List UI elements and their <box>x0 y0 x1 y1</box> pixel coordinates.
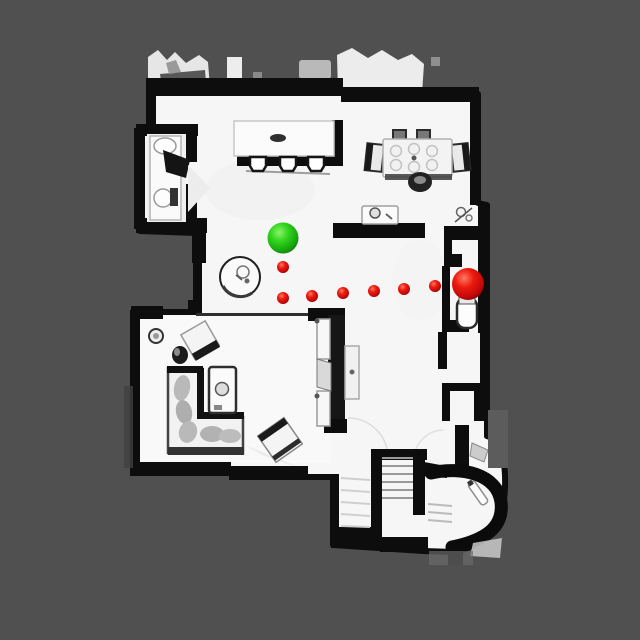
bar-stool-icon <box>308 157 324 171</box>
plate-icon <box>391 160 402 171</box>
map-canvas[interactable] <box>0 0 640 640</box>
wall-top-right <box>341 87 479 102</box>
shadow-patch <box>488 410 508 468</box>
waypoint-dot <box>368 285 380 297</box>
waypoint-dot <box>337 287 349 299</box>
stair-rail-right <box>413 452 425 515</box>
wall-entry <box>455 425 469 468</box>
stair-rail-left <box>371 452 382 532</box>
wall-hallway-stub <box>444 226 481 240</box>
plate-icon <box>427 146 438 157</box>
waypoint-dot <box>398 283 410 295</box>
waypoint-dot <box>429 280 441 292</box>
waypoint-dot <box>306 290 318 302</box>
bar-stool-icon <box>250 157 266 171</box>
kitchen-island <box>234 121 334 174</box>
wall-right <box>470 97 481 205</box>
round-table <box>220 257 260 297</box>
plate-icon <box>409 162 420 173</box>
wall-hallway-right <box>478 202 488 333</box>
floor-lamp-icon <box>172 346 188 364</box>
map-viewport <box>0 0 640 640</box>
side-table <box>362 206 398 224</box>
coffee-table-shape <box>209 367 236 413</box>
goal-marker <box>452 268 484 300</box>
bowl-icon <box>370 208 380 218</box>
toilet-icon <box>154 189 172 207</box>
sideboard-shape <box>333 223 425 238</box>
noise-gray-box <box>299 60 331 79</box>
waypoint-dot <box>277 292 289 304</box>
waypoint-dot <box>277 261 289 273</box>
wall-bathroom-left <box>134 128 145 229</box>
bar-stool-icon <box>280 157 296 171</box>
plate-icon <box>427 160 438 171</box>
shadow-patch <box>429 551 473 565</box>
wall-livingroom-bottom <box>130 462 231 476</box>
wall-smudge <box>124 386 133 468</box>
plate-icon <box>391 146 402 157</box>
wall-niche <box>317 359 331 391</box>
plate-icon <box>409 144 420 155</box>
island-item <box>270 134 286 142</box>
start-marker <box>268 223 299 254</box>
wall-top-left <box>146 78 343 96</box>
wall-panel <box>317 319 330 359</box>
